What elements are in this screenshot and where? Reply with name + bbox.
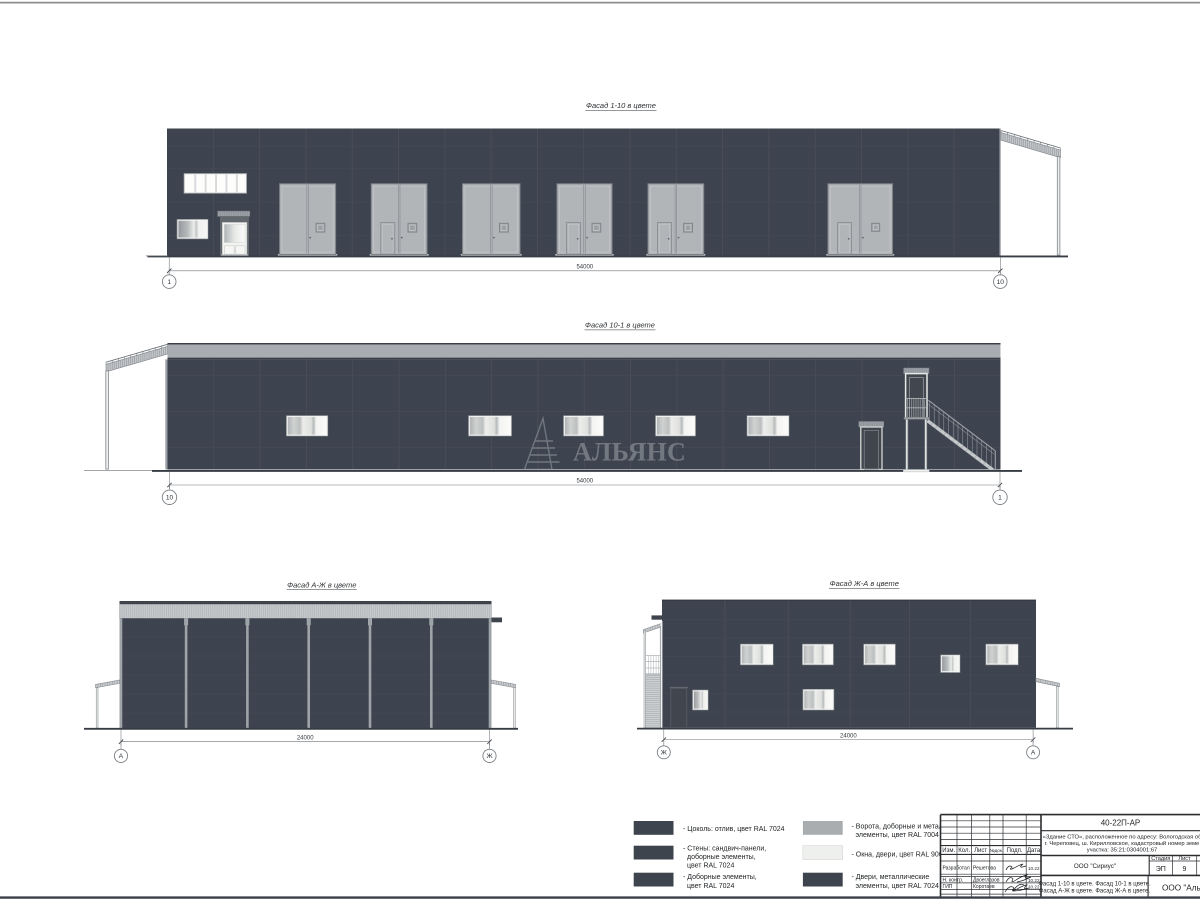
svg-text:А: А [119,753,124,760]
svg-text:24000: 24000 [840,733,857,739]
svg-text:Дата: Дата [1027,848,1041,854]
svg-text:№док.: №док. [990,848,1003,853]
svg-text:- Стены: сандвич-панели,: - Стены: сандвич-панели, [683,845,766,852]
svg-text:40-22П-АР: 40-22П-АР [1101,818,1141,827]
svg-text:Фасад 1-10 в цвете. Фасад 10-1: Фасад 1-10 в цвете. Фасад 10-1 в цвете. [1038,881,1151,887]
svg-text:- Ворота, доборные и металл.: - Ворота, доборные и металл. [852,822,949,830]
svg-text:цвет RAL 7024: цвет RAL 7024 [687,883,734,890]
svg-text:24000: 24000 [297,736,314,742]
svg-text:54000: 54000 [576,264,593,270]
svg-text:1: 1 [167,279,171,286]
svg-text:Лист: Лист [1178,856,1191,862]
svg-text:Двоеглазов: Двоеглазов [973,878,1000,884]
svg-text:Коротаев: Коротаев [973,884,995,890]
svg-text:Фасад А-Ж в цвете. Фасад Ж-А в: Фасад А-Ж в цвете. Фасад Ж-А в цвете. [1039,889,1151,895]
svg-text:элементы, цвет RAL 7024: элементы, цвет RAL 7024 [856,883,940,890]
svg-text:- Окна, двери, цвет RAL 9003: - Окна, двери, цвет RAL 9003 [852,851,947,858]
svg-text:Фасад 1-10 в цвете: Фасад 1-10 в цвете [586,101,656,110]
svg-text:Стадия: Стадия [1151,856,1170,862]
svg-text:ГИП: ГИП [943,884,953,890]
svg-text:Изм.: Изм. [942,848,955,854]
svg-text:Ж: Ж [486,753,492,760]
svg-text:10: 10 [997,279,1005,286]
svg-text:Фасад 10-1 в цвете: Фасад 10-1 в цвете [585,321,655,330]
svg-text:элементы, цвет RAL 7004: элементы, цвет RAL 7004 [856,832,940,839]
svg-text:9: 9 [1183,866,1187,873]
svg-text:Лист: Лист [974,848,987,854]
svg-text:Ж: Ж [661,750,667,757]
svg-text:ЭП: ЭП [1156,866,1166,873]
svg-text:ООО "Сириус": ООО "Сириус" [1074,863,1116,870]
svg-text:АЛЬЯНС: АЛЬЯНС [573,438,686,467]
svg-text:10.22: 10.22 [1028,866,1040,871]
svg-text:- Цоколь: отлив, цвет RAL 7024: - Цоколь: отлив, цвет RAL 7024 [683,826,785,833]
svg-text:Фасад Ж-А в цвете: Фасад Ж-А в цвете [830,579,899,588]
svg-text:цвет RAL 7024: цвет RAL 7024 [687,863,734,870]
svg-text:Н. контр.: Н. контр. [943,878,964,884]
svg-text:«Здание СТО», расположенное по: «Здание СТО», расположенное по адресу: В… [1043,835,1200,841]
svg-text:Решетова: Решетова [973,866,996,872]
svg-text:Подп.: Подп. [1007,848,1023,854]
svg-text:г. Череповец, ш. Кирилловское,: г. Череповец, ш. Кирилловское, кадастров… [1045,840,1200,847]
svg-text:10: 10 [166,495,174,502]
svg-text:- Двери, металлические: - Двери, металлические [852,874,930,881]
svg-text:- Доборные элементы,: - Доборные элементы, [683,873,757,881]
svg-text:Фасад А-Ж в цвете: Фасад А-Ж в цвете [287,580,356,589]
svg-text:А: А [1031,750,1036,757]
svg-text:Кол.: Кол. [958,848,970,854]
svg-text:участка: 35:21:0304001:67: участка: 35:21:0304001:67 [1087,847,1158,853]
svg-text:доборные элементы,: доборные элементы, [687,853,756,861]
svg-text:ООО "Алья: ООО "Алья [1162,884,1200,893]
svg-text:54000: 54000 [576,479,593,485]
svg-text:Разработал: Разработал [943,866,970,872]
svg-text:1: 1 [998,495,1002,502]
